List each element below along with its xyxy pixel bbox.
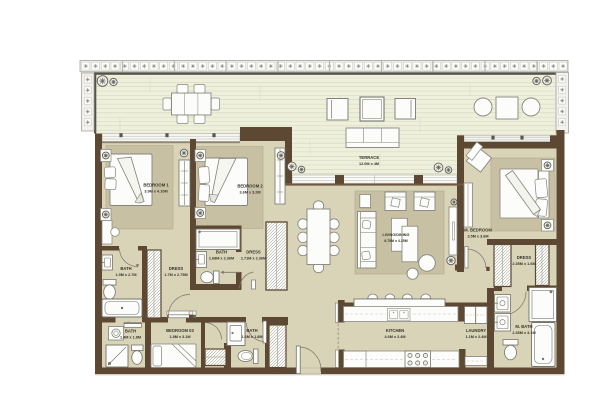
svg-text:DRESS: DRESS xyxy=(246,250,261,255)
svg-text:1.6M x 1.8M: 1.6M x 1.8M xyxy=(241,335,262,339)
svg-text:1.8M x 3.1M: 1.8M x 3.1M xyxy=(169,335,190,339)
svg-text:DRESS: DRESS xyxy=(517,255,532,260)
svg-text:3.6M x 3.2M: 3.6M x 3.2M xyxy=(239,190,260,194)
svg-text:4.6M x 2.4M: 4.6M x 2.4M xyxy=(384,335,405,339)
svg-text:BATH: BATH xyxy=(246,328,257,333)
svg-text:BEDROOM 1: BEDROOM 1 xyxy=(143,183,169,188)
svg-text:BATH: BATH xyxy=(216,250,227,255)
svg-text:DRESS: DRESS xyxy=(169,266,184,271)
svg-text:1.71M x 2.36M: 1.71M x 2.36M xyxy=(241,256,266,260)
svg-text:3.9M x 4.10M: 3.9M x 4.10M xyxy=(144,189,167,193)
svg-text:1.9M x 2.7M: 1.9M x 2.7M xyxy=(115,273,136,277)
svg-text:M. BATH: M. BATH xyxy=(515,324,532,329)
svg-text:BEDROOM 03: BEDROOM 03 xyxy=(166,328,194,333)
svg-text:M. BEDROOM: M. BEDROOM xyxy=(464,228,492,233)
svg-text:2.35M x 1.6M: 2.35M x 1.6M xyxy=(512,262,535,266)
svg-text:1.1M x 2.4M: 1.1M x 2.4M xyxy=(465,335,486,339)
svg-text:KITCHEN: KITCHEN xyxy=(386,328,405,333)
svg-text:2.35M x 3.1M: 2.35M x 3.1M xyxy=(512,331,535,335)
svg-text:1.4M x 1.8M: 1.4M x 1.8M xyxy=(120,335,141,339)
svg-text:BATH: BATH xyxy=(120,266,131,271)
svg-text:LAUNDRY: LAUNDRY xyxy=(466,328,487,333)
svg-text:12.0M x 4M: 12.0M x 4M xyxy=(359,162,379,166)
svg-text:BEDROOM 2: BEDROOM 2 xyxy=(237,184,263,189)
svg-text:BATH: BATH xyxy=(125,329,136,334)
svg-text:6.75M x 4.25M: 6.75M x 4.25M xyxy=(384,239,407,243)
svg-text:1.68M x 2.36M: 1.68M x 2.36M xyxy=(209,256,234,260)
svg-text:3.5M x 3.6M: 3.5M x 3.6M xyxy=(467,234,488,238)
svg-text:1.7M x 2.75M: 1.7M x 2.75M xyxy=(164,273,187,277)
svg-text:TERRACE: TERRACE xyxy=(359,155,379,160)
svg-text:LIVING/DINING: LIVING/DINING xyxy=(382,233,409,237)
